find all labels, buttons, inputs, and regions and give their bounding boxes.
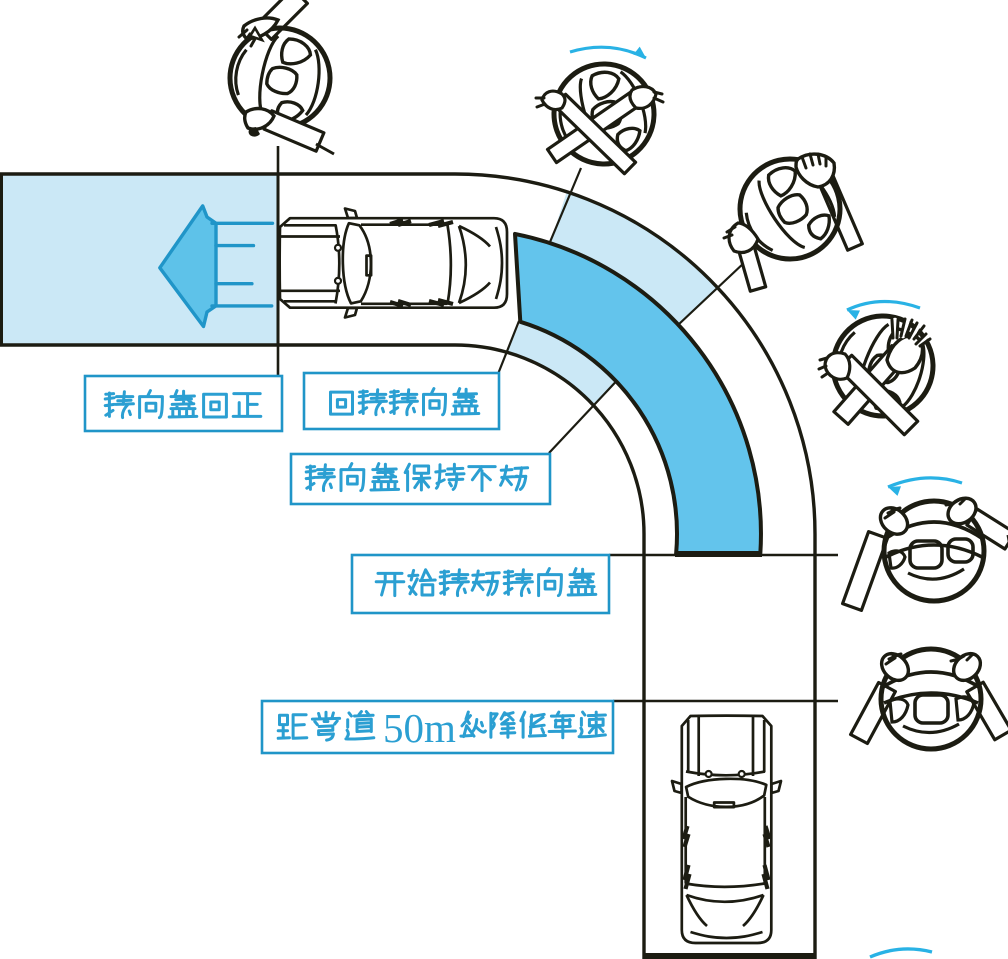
svg-text:50m: 50m (383, 705, 456, 751)
